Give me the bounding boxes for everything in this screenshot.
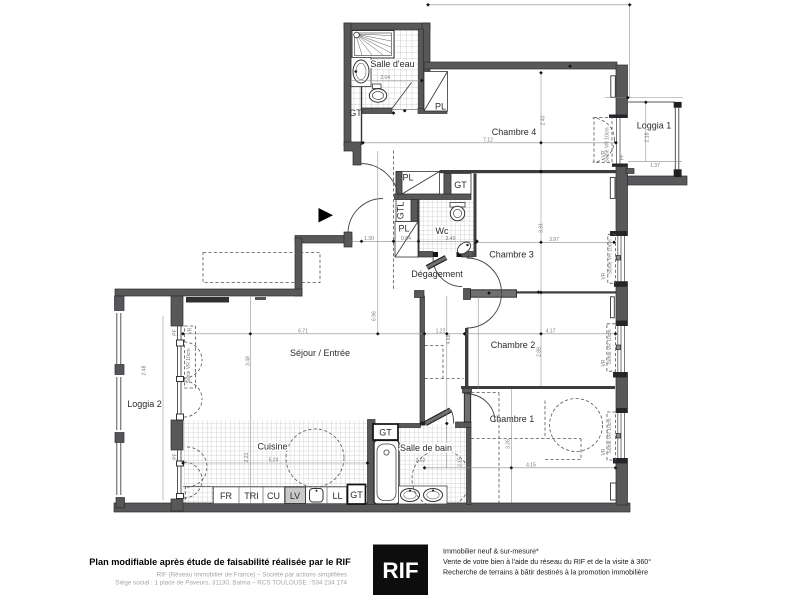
svg-text:Loggia 1: Loggia 1 — [637, 121, 672, 131]
svg-text:Vente de votre bien à l'aide d: Vente de votre bien à l'aide du réseau d… — [443, 558, 651, 566]
svg-text:1.22: 1.22 — [436, 328, 446, 334]
svg-text:Salle d'eau: Salle d'eau — [370, 59, 414, 69]
svg-text:GT: GT — [379, 428, 392, 438]
svg-text:PF: PF — [620, 154, 626, 160]
svg-text:PF: PF — [173, 453, 179, 459]
svg-text:Salle de bain: Salle de bain — [400, 443, 452, 453]
svg-text:6.71: 6.71 — [298, 328, 308, 334]
svg-text:Wc: Wc — [436, 226, 449, 236]
svg-text:Chambre 2: Chambre 2 — [491, 340, 536, 350]
svg-text:2.21: 2.21 — [244, 452, 250, 462]
svg-text:PF: PF — [173, 329, 179, 335]
svg-text:CU: CU — [267, 491, 280, 501]
svg-text:2.62: 2.62 — [416, 458, 426, 464]
svg-text:Sortie VR 10cm: Sortie VR 10cm — [605, 127, 611, 162]
svg-text:Loggia 2: Loggia 2 — [127, 399, 162, 409]
svg-text:GT: GT — [350, 490, 363, 500]
svg-text:3.26: 3.26 — [505, 439, 511, 449]
svg-text:Chambre 1: Chambre 1 — [490, 414, 535, 424]
svg-text:GTL: GTL — [396, 202, 406, 220]
svg-text:1.30: 1.30 — [364, 236, 374, 242]
svg-text:5.24: 5.24 — [269, 458, 279, 464]
svg-text:Chambre 3: Chambre 3 — [489, 250, 534, 260]
svg-text:2.40: 2.40 — [540, 115, 546, 125]
svg-text:Sortie VR 10cm: Sortie VR 10cm — [186, 348, 192, 383]
svg-text:RIF: RIF — [382, 558, 418, 583]
svg-text:4.17: 4.17 — [546, 328, 556, 334]
svg-text:2.18: 2.18 — [645, 132, 651, 142]
svg-text:3.48: 3.48 — [245, 356, 251, 366]
svg-text:7.12: 7.12 — [483, 137, 493, 143]
svg-text:Siège social : 1 place de Pave: Siège social : 1 place de Paveurs, 31130… — [115, 579, 347, 586]
svg-text:Sortie VR 10cm: Sortie VR 10cm — [608, 239, 614, 274]
svg-text:2.88: 2.88 — [537, 347, 543, 357]
svg-text:3.97: 3.97 — [549, 237, 559, 243]
svg-text:4.15: 4.15 — [526, 462, 536, 468]
svg-text:FR: FR — [220, 491, 232, 501]
svg-text:Immobilier neuf & sur-mesure*: Immobilier neuf & sur-mesure* — [443, 548, 539, 556]
svg-text:Sortie VR 10cm: Sortie VR 10cm — [607, 418, 613, 453]
svg-text:Cuisine: Cuisine — [257, 442, 287, 452]
svg-text:Recherche de terrains à bâtir: Recherche de terrains à bâtir destinés à… — [443, 569, 648, 577]
svg-text:3.40: 3.40 — [446, 236, 456, 242]
svg-text:PL: PL — [402, 173, 413, 183]
svg-text:TRI: TRI — [244, 491, 259, 501]
svg-text:GT: GT — [349, 108, 362, 118]
svg-text:0.64: 0.64 — [401, 236, 411, 242]
svg-text:RIF (Réseau Immobilier de Fran: RIF (Réseau Immobilier de France) – Soci… — [157, 571, 347, 578]
svg-text:Chambre 4: Chambre 4 — [492, 127, 537, 137]
svg-text:VR: VR — [188, 327, 194, 334]
svg-text:PL: PL — [435, 102, 446, 112]
svg-text:LL: LL — [332, 491, 342, 501]
svg-text:Sortie VR 10cm: Sortie VR 10cm — [607, 329, 613, 364]
svg-text:2.15: 2.15 — [458, 457, 464, 467]
svg-text:3.31: 3.31 — [538, 223, 544, 233]
svg-text:LV: LV — [290, 491, 300, 501]
svg-text:VR: VR — [601, 272, 607, 279]
svg-text:2.48: 2.48 — [142, 365, 148, 375]
svg-text:Plan modifiable après étude de: Plan modifiable après étude de faisabili… — [89, 557, 351, 567]
svg-text:4.68: 4.68 — [446, 334, 452, 344]
svg-text:2.04: 2.04 — [380, 75, 390, 81]
svg-text:GT: GT — [454, 180, 467, 190]
svg-text:PL: PL — [398, 224, 409, 234]
svg-text:6.96: 6.96 — [372, 311, 378, 321]
svg-text:Séjour / Entrée: Séjour / Entrée — [290, 348, 350, 358]
svg-text:Dégagement: Dégagement — [411, 269, 463, 279]
svg-text:1.37: 1.37 — [650, 163, 660, 169]
